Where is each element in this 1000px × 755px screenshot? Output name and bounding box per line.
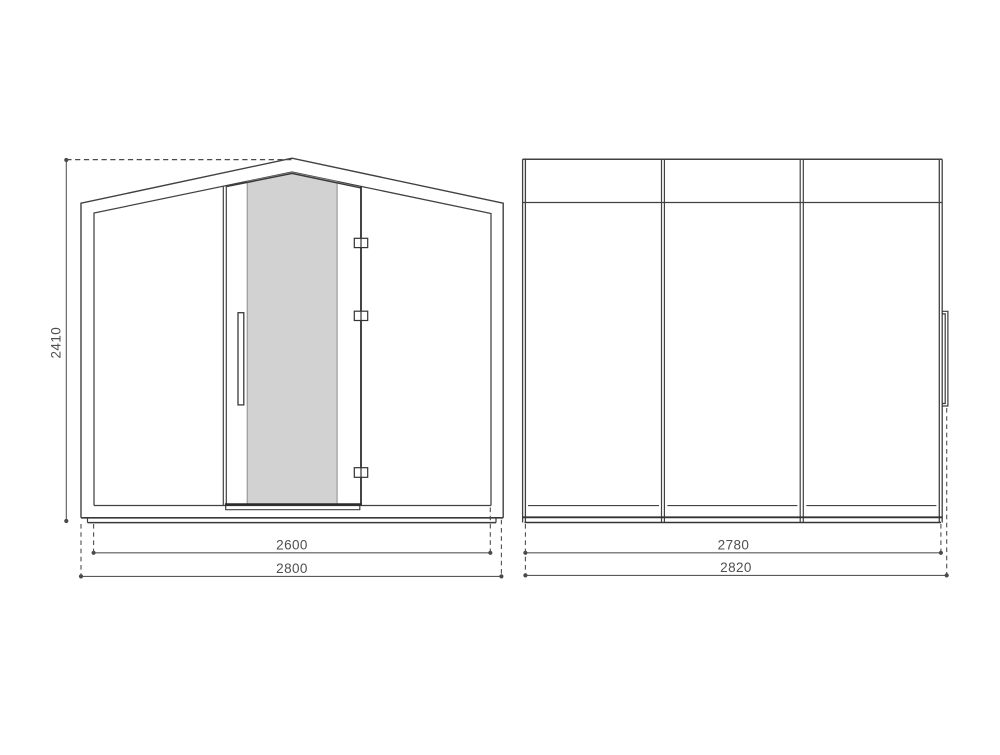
svg-text:2600: 2600: [276, 538, 308, 553]
svg-text:2800: 2800: [276, 561, 308, 576]
svg-text:2780: 2780: [718, 538, 750, 553]
svg-text:2820: 2820: [720, 560, 752, 575]
svg-text:2410: 2410: [49, 327, 64, 359]
